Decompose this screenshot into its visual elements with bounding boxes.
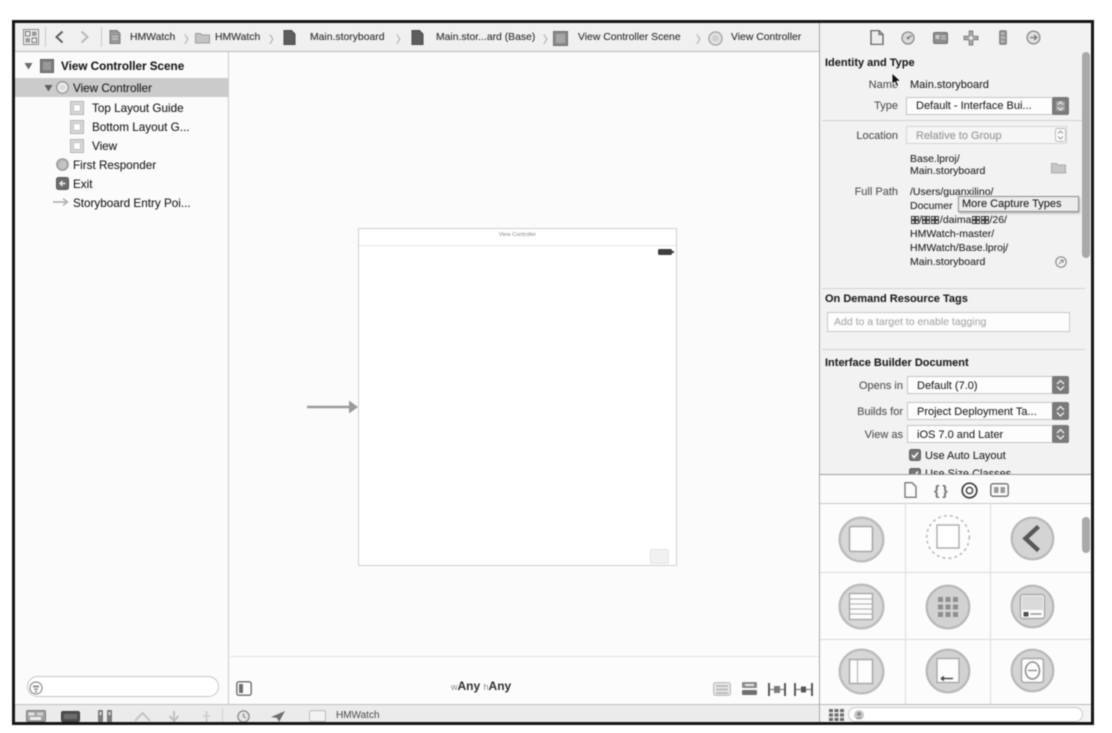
svg-text:@: @ (58, 161, 66, 170)
